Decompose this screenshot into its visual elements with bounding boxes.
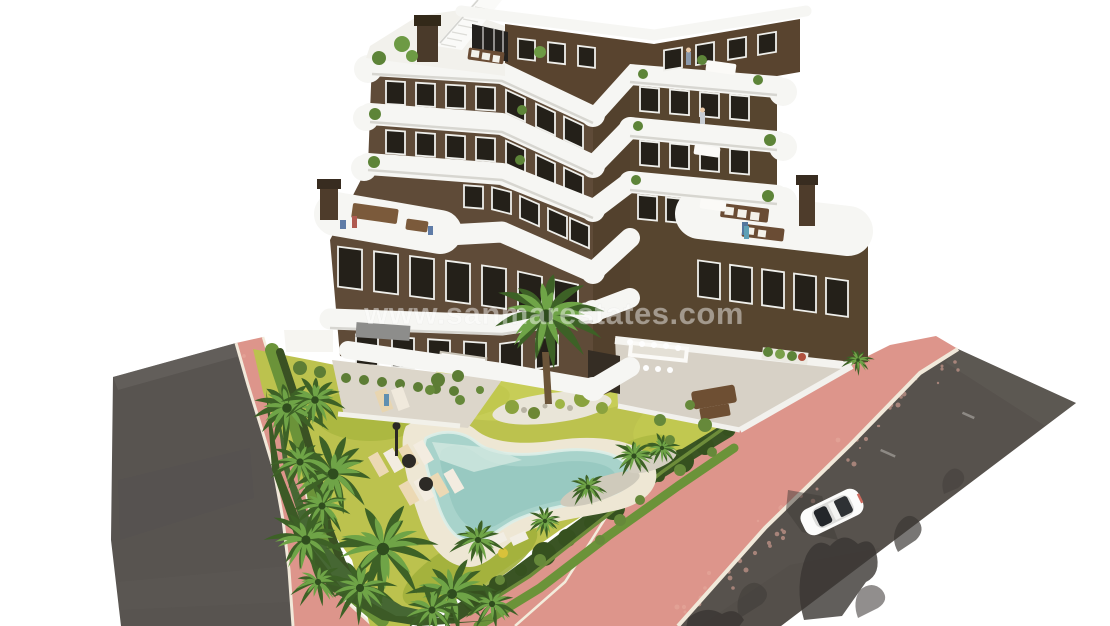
svg-text:www.sanmarestates.com: www.sanmarestates.com: [363, 296, 744, 331]
